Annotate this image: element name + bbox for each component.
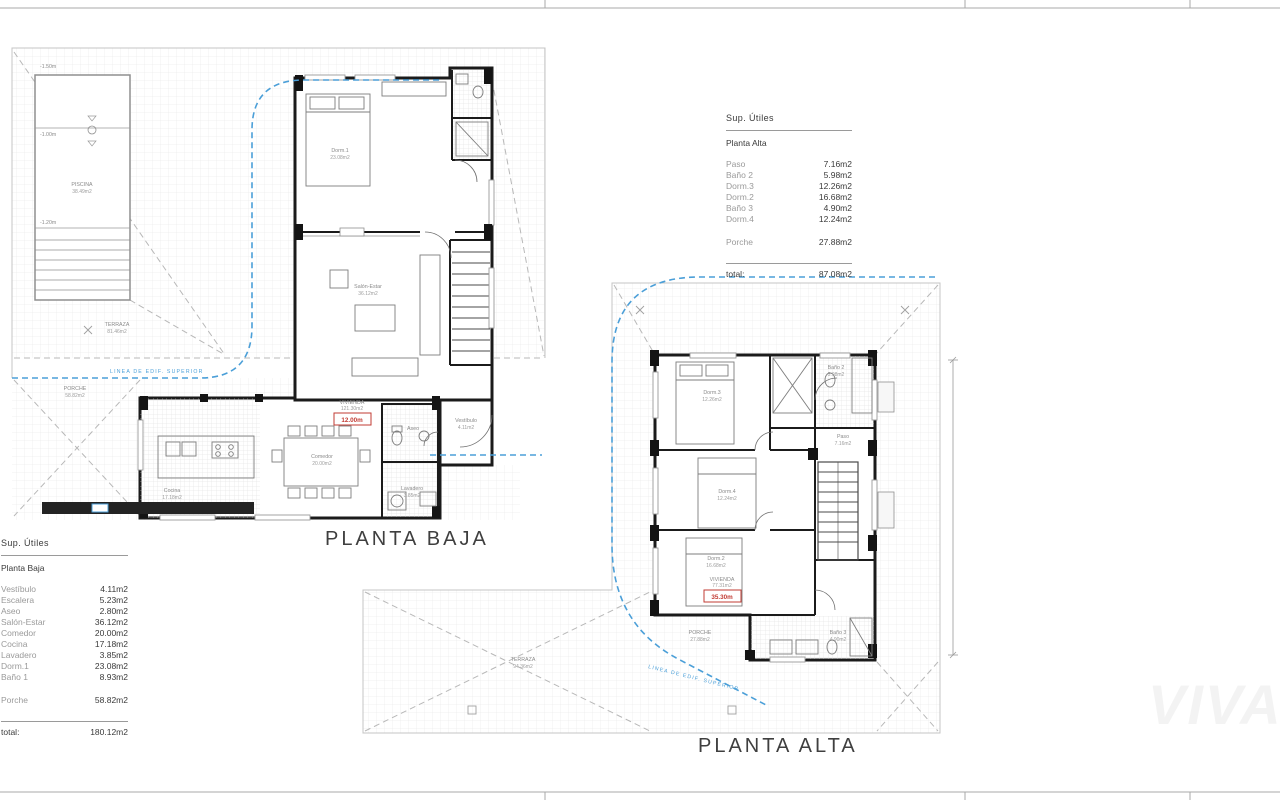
sup-utiles-table-planta-alta: Sup. Útiles Planta Alta Paso7.16m2 Baño … bbox=[726, 113, 852, 280]
table-row: Aseo2.80m2 bbox=[1, 606, 128, 617]
svg-text:16.68m2: 16.68m2 bbox=[706, 563, 726, 569]
label-terraza: TERRAZA bbox=[511, 657, 536, 663]
svg-text:121.30m2: 121.30m2 bbox=[341, 406, 363, 412]
label-linea-edif: LINEA DE EDIF. SUPERIOR bbox=[110, 369, 204, 375]
label-aseo: Aseo bbox=[407, 426, 419, 432]
svg-text:12.24m2: 12.24m2 bbox=[717, 496, 737, 502]
pool: PISCINA 38.49m2 -1.50m -1.00m -1.20m bbox=[35, 64, 130, 300]
table-row: Baño 25.98m2 bbox=[726, 170, 852, 181]
svg-text:81.46m2: 81.46m2 bbox=[107, 329, 127, 335]
svg-text:38.49m2: 38.49m2 bbox=[72, 189, 92, 195]
pool-depth-mark: -1.50m bbox=[40, 64, 56, 70]
planta-alta-title: PLANTA ALTA bbox=[698, 735, 858, 758]
table-header: Sup. Útiles bbox=[726, 113, 852, 123]
table-row: Baño 34.90m2 bbox=[726, 203, 852, 214]
divider bbox=[1, 721, 128, 722]
table-subtitle: Planta Baja bbox=[1, 563, 128, 573]
table-header: Sup. Útiles bbox=[1, 538, 128, 548]
table-row: Baño 18.93m2 bbox=[1, 672, 128, 683]
svg-text:94.36m2: 94.36m2 bbox=[513, 664, 533, 670]
gate bbox=[92, 504, 108, 512]
table-row: Salón-Estar36.12m2 bbox=[1, 617, 128, 628]
svg-text:4.90m2: 4.90m2 bbox=[830, 637, 847, 643]
svg-text:58.82m2: 58.82m2 bbox=[65, 393, 85, 399]
svg-text:20.00m2: 20.00m2 bbox=[312, 461, 332, 467]
svg-text:17.18m2: 17.18m2 bbox=[162, 495, 182, 501]
floorplan-drawing: PISCINA 38.49m2 -1.50m -1.00m -1.20m bbox=[0, 0, 1280, 800]
label-comedor: Comedor bbox=[311, 454, 333, 460]
label-porche: PORCHE bbox=[64, 386, 87, 392]
svg-text:5.98m2: 5.98m2 bbox=[828, 372, 845, 378]
label-salon: Salón-Estar bbox=[354, 284, 382, 290]
label-bano2: Baño 2 bbox=[828, 365, 845, 371]
divider bbox=[726, 130, 852, 131]
garden-wall bbox=[42, 502, 254, 514]
label-bano3: Baño 3 bbox=[830, 630, 847, 636]
sup-utiles-table-planta-baja: Sup. Útiles Planta Baja Vestíbulo4.11m2 … bbox=[1, 538, 128, 738]
table-row: Paso7.16m2 bbox=[726, 159, 852, 170]
table-row: Dorm.216.68m2 bbox=[726, 192, 852, 203]
planta-baja-plan: PISCINA 38.49m2 -1.50m -1.00m -1.20m bbox=[12, 48, 545, 520]
table-row: Escalera5.23m2 bbox=[1, 595, 128, 606]
label-dorm2: Dorm.2 bbox=[707, 556, 724, 562]
table-row: Cocina17.18m2 bbox=[1, 639, 128, 650]
table-row-porche: Porche58.82m2 bbox=[1, 695, 128, 706]
label-cocina: Cocina bbox=[164, 488, 181, 494]
exterior-unit bbox=[878, 382, 894, 412]
svg-text:27.88m2: 27.88m2 bbox=[690, 637, 710, 643]
table-row: Comedor20.00m2 bbox=[1, 628, 128, 639]
label-piscina: PISCINA bbox=[71, 182, 93, 188]
svg-text:3.85m2: 3.85m2 bbox=[404, 493, 421, 499]
label-cota-roja: 35.30m bbox=[711, 594, 733, 601]
table-row: Dorm.412.24m2 bbox=[726, 214, 852, 225]
label-vestibulo: Vestíbulo bbox=[455, 418, 477, 424]
fireplace bbox=[340, 228, 364, 236]
label-porche: PORCHE bbox=[689, 630, 712, 636]
table-row-total: total:87.08m2 bbox=[726, 269, 852, 280]
planta-baja-title: PLANTA BAJA bbox=[325, 528, 489, 551]
table-subtitle: Planta Alta bbox=[726, 138, 852, 148]
table-row: Dorm.312.26m2 bbox=[726, 181, 852, 192]
table-row-porche: Porche27.88m2 bbox=[726, 237, 852, 248]
pool-depth-mark: -1.20m bbox=[40, 220, 56, 226]
label-dorm1: Dorm.1 bbox=[331, 148, 348, 154]
pool-depth-mark: -1.00m bbox=[40, 132, 56, 138]
table-row-total: total:180.12m2 bbox=[1, 727, 128, 738]
label-cota-roja: 12.00m bbox=[341, 417, 363, 424]
label-lavadero: Lavadero bbox=[401, 486, 423, 492]
table-row: Vestíbulo4.11m2 bbox=[1, 584, 128, 595]
house-planta-alta bbox=[650, 350, 894, 662]
label-dorm3: Dorm.3 bbox=[703, 390, 720, 396]
svg-text:36.12m2: 36.12m2 bbox=[358, 291, 378, 297]
aseo-floor bbox=[383, 405, 437, 461]
divider bbox=[726, 263, 852, 264]
label-paso: Paso bbox=[837, 434, 849, 440]
label-dorm4: Dorm.4 bbox=[718, 489, 735, 495]
divider bbox=[1, 555, 128, 556]
exterior-unit bbox=[878, 492, 894, 528]
bano3-floor bbox=[751, 616, 874, 659]
svg-text:23.08m2: 23.08m2 bbox=[330, 155, 350, 161]
svg-text:12.26m2: 12.26m2 bbox=[702, 397, 722, 403]
label-terraza: TERRAZA bbox=[105, 322, 130, 328]
drawing-sheet: PISCINA 38.49m2 -1.50m -1.00m -1.20m bbox=[0, 0, 1280, 800]
table-row: Lavadero3.85m2 bbox=[1, 650, 128, 661]
svg-text:7.16m2: 7.16m2 bbox=[835, 441, 852, 447]
table-row: Dorm.123.08m2 bbox=[1, 661, 128, 672]
svg-text:77.31m2: 77.31m2 bbox=[712, 583, 732, 589]
watermark-logo: VIVA bbox=[1148, 672, 1280, 737]
svg-text:4.11m2: 4.11m2 bbox=[458, 425, 475, 431]
bano2-floor bbox=[816, 356, 874, 427]
dimension-line bbox=[948, 357, 958, 658]
